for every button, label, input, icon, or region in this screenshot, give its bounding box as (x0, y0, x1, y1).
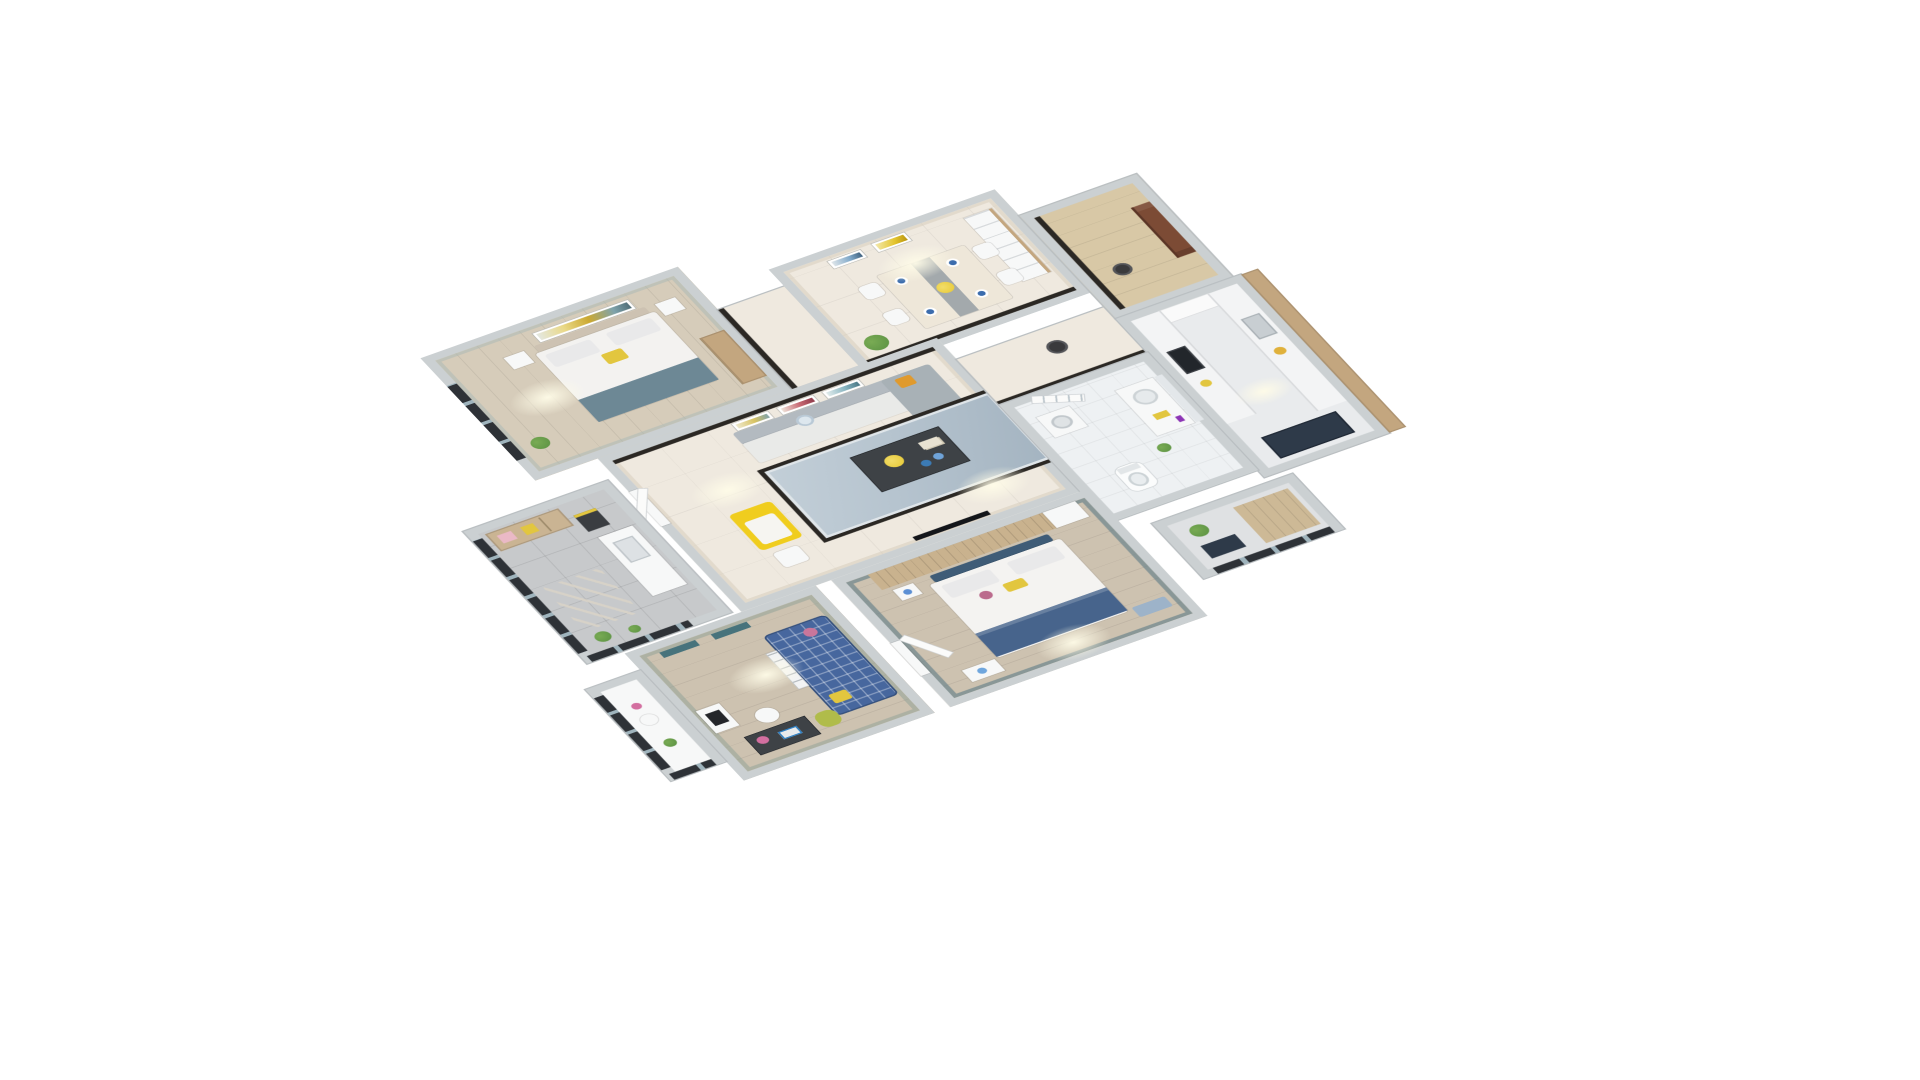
balcony-table (637, 712, 662, 727)
bedroom2-nightstand (655, 297, 686, 316)
coffee-table-bowl (931, 452, 946, 461)
service-balcony-plant (1186, 522, 1213, 539)
master-door-frame (891, 640, 931, 676)
kids-olive-chair (811, 708, 845, 729)
kitchen-cooktop (1166, 346, 1205, 375)
living-yellow-chaise (728, 501, 803, 551)
corridor-basket (1042, 338, 1072, 356)
dining-plate (944, 257, 962, 268)
coffee-table-bowl (919, 459, 934, 468)
kids-wall-shelf (711, 622, 752, 640)
bedroom2-window (447, 383, 527, 461)
dining-plant (859, 332, 893, 353)
dining-chair (881, 307, 911, 326)
nightstand-decor-blue (902, 588, 914, 596)
utility-sink (612, 536, 651, 563)
master-pillow (941, 569, 1001, 599)
yellow-chaise-cushion (743, 512, 793, 545)
master-headboard (929, 534, 1054, 583)
master-dresser (962, 659, 1006, 682)
bedroom2-plant (527, 435, 554, 452)
dining-chair (857, 282, 887, 301)
kids-cabinet (696, 703, 740, 733)
living-ottoman (772, 545, 810, 568)
shelf-pink-towel (497, 531, 518, 544)
master-yellow-pillow (1002, 578, 1029, 593)
balcony-glazed-wall (594, 695, 671, 770)
bathroom-glass-door (1032, 394, 1085, 403)
floorplan-stage (0, 0, 1920, 1080)
dining-wall-art-blue (828, 250, 867, 269)
kitchen-fruit-bowl (1272, 345, 1289, 356)
toilet-tank (1116, 463, 1141, 475)
master-door-leaf (900, 635, 953, 657)
master-denim-throw (975, 587, 1128, 657)
bedroom2-yellow-pillow (600, 348, 629, 365)
bedroom2-nightstand (503, 351, 534, 370)
dining-plate (921, 306, 939, 317)
bedroom2-throw-blanket (578, 357, 719, 422)
coffee-table-books (918, 436, 943, 449)
toilet-seat (1124, 470, 1153, 489)
kids-ladder (767, 651, 809, 689)
daybed-floral-pillow (801, 626, 821, 638)
master-floral-pillow (977, 589, 995, 600)
utility-cubby-shelf (485, 508, 574, 551)
balcony-flowers (629, 702, 644, 711)
utility-plant (591, 629, 614, 643)
master-cabinet (1042, 501, 1089, 528)
bathroom-washer (1036, 406, 1088, 438)
bathroom-basin (1128, 386, 1162, 407)
kids-desk (745, 716, 820, 754)
utility-plant (626, 624, 643, 635)
service-balcony-deck (1233, 488, 1321, 543)
master-pillow (1006, 546, 1066, 576)
master-bench (1131, 596, 1173, 617)
dining-plate (892, 275, 910, 286)
master-bed (929, 538, 1128, 657)
dining-wall-art-yellow (871, 232, 911, 252)
master-nightstand (893, 583, 923, 601)
dresser-decor-blue (975, 667, 989, 675)
dining-plate (972, 288, 990, 299)
service-balcony-bench (1200, 534, 1246, 559)
shelf-yellow-box (520, 523, 540, 535)
bathroom-yellow-towel (1152, 410, 1171, 420)
bathroom-purple-bottle (1175, 415, 1185, 422)
daybed-yellow-pillow (828, 689, 853, 704)
kitchen-navy-unit (1261, 411, 1356, 459)
entry-basket (1109, 261, 1136, 278)
entry-front-door (1131, 201, 1197, 258)
shelf-divider (538, 517, 552, 531)
coffee-table-flowers (881, 453, 908, 470)
bathroom-plant (1154, 442, 1174, 454)
bathroom-toilet (1112, 460, 1160, 492)
room-service-balcony (1152, 474, 1344, 579)
kitchen-kettle (1198, 378, 1214, 388)
desk-tablet (777, 726, 802, 740)
kids-desk-chair (750, 705, 783, 725)
kids-cabinet-screen (705, 710, 730, 727)
kitchen-sink (1240, 313, 1278, 340)
kids-wall-shelf (659, 640, 700, 658)
balcony-plant (661, 737, 679, 748)
balcony-glazed-wall-south (669, 759, 716, 780)
kids-daybed (765, 616, 897, 715)
apartment-floorplan (311, 120, 1468, 800)
utility-cart (573, 508, 610, 532)
service-balcony-window (1213, 526, 1335, 573)
utility-drying-rack (543, 568, 641, 632)
utility-glazed-wall (473, 538, 588, 654)
desk-flowers (754, 735, 771, 746)
washer-door (1047, 413, 1077, 431)
